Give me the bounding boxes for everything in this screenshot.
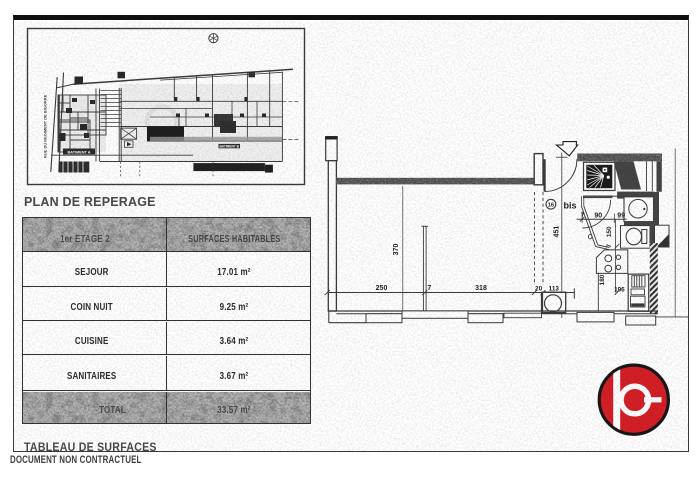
svg-text:7: 7 — [581, 212, 585, 219]
svg-text:318: 318 — [475, 285, 487, 292]
svg-text:196: 196 — [614, 286, 625, 293]
svg-text:bis: bis — [564, 201, 577, 211]
svg-text:150: 150 — [606, 226, 613, 237]
svg-text:BATIMENT A: BATIMENT A — [68, 150, 91, 154]
svg-text:113: 113 — [549, 285, 560, 292]
svg-text:BATIMENT B: BATIMENT B — [219, 145, 239, 149]
svg-text:7: 7 — [427, 285, 431, 292]
svg-text:RUE DU REGIMENT DE BIGORRE: RUE DU REGIMENT DE BIGORRE — [44, 94, 48, 158]
svg-text:7: 7 — [606, 244, 613, 248]
svg-text:451: 451 — [553, 226, 560, 238]
svg-text:16: 16 — [548, 202, 554, 208]
svg-text:99: 99 — [617, 213, 625, 220]
svg-text:20: 20 — [535, 285, 543, 292]
svg-text:370: 370 — [393, 244, 400, 256]
svg-text:180: 180 — [599, 274, 606, 285]
svg-text:250: 250 — [376, 285, 388, 292]
svg-text:90: 90 — [594, 213, 602, 220]
